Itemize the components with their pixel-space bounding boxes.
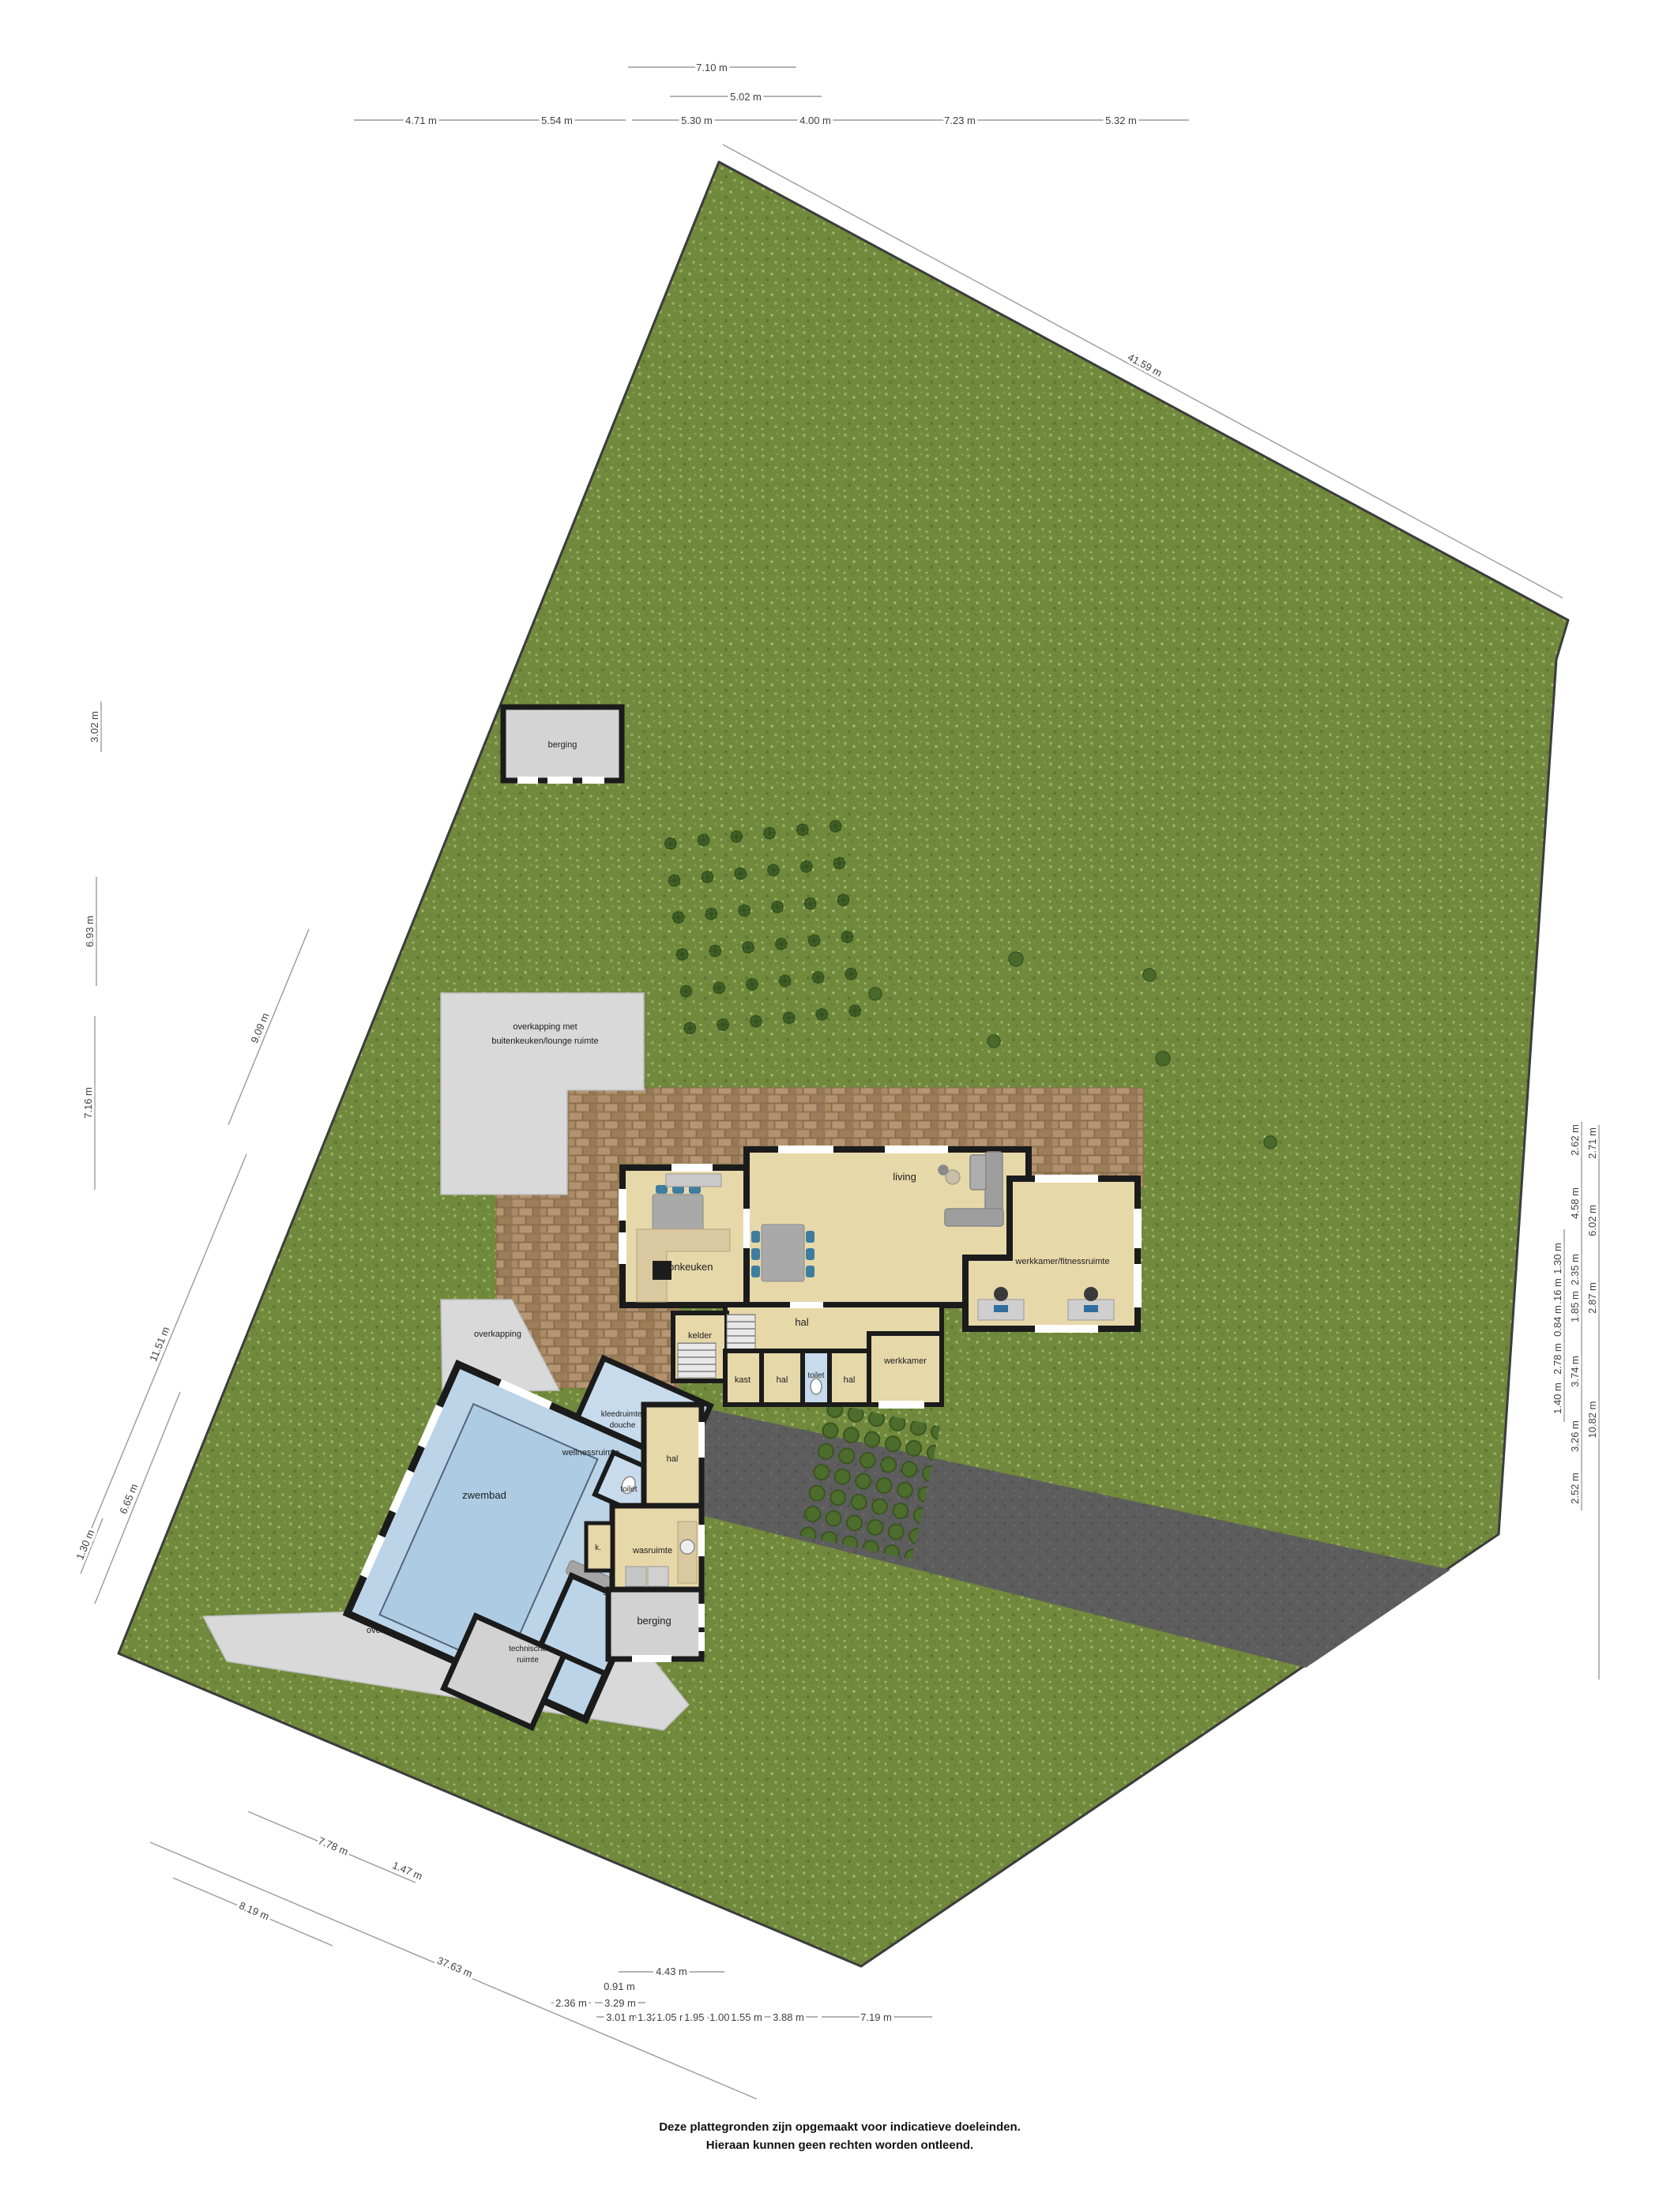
- hall-2-label: hal: [844, 1375, 856, 1385]
- closet-label: kast: [735, 1375, 750, 1385]
- cellar-stairs: [678, 1343, 716, 1378]
- dimension-label: 1.55 m: [731, 2011, 762, 2023]
- dimension-label: 5.54 m: [541, 115, 573, 126]
- orchard-trees: [646, 808, 868, 1055]
- dimension-label: 2.35 m: [1569, 1254, 1581, 1285]
- dimension-label: 10.82 m: [1586, 1401, 1598, 1439]
- dimension-label: 7.19 m: [860, 2011, 892, 2023]
- dimension-label: 1.40 m: [1552, 1382, 1563, 1414]
- dimension-label: 1.85 m: [1569, 1291, 1581, 1322]
- technical-label: technische: [509, 1645, 547, 1653]
- dimension-label: 2.52 m: [1569, 1473, 1581, 1504]
- canopy-small-label: overkapping: [474, 1330, 521, 1339]
- canopy-kitchen-label: buitenkeuken/lounge ruimte: [491, 1036, 598, 1046]
- changing-room-label: douche: [610, 1421, 636, 1430]
- dimension-label: 3.74 m: [1569, 1356, 1581, 1387]
- dimension-label: 1.05 m: [656, 2011, 688, 2023]
- dimension-label: 0.91 m: [604, 1981, 635, 1992]
- dimension-label: 1.30 m: [73, 1528, 96, 1561]
- dimension-label: 4.43 m: [656, 1966, 687, 1977]
- canopy-kitchen-label: overkapping met: [513, 1022, 577, 1032]
- dimension-label: 7.10 m: [696, 62, 728, 73]
- hall-main-label: hal: [795, 1316, 808, 1328]
- garden-plot: [118, 162, 1568, 1966]
- annex-label: werkkamer/fitnessruimte: [1014, 1257, 1109, 1266]
- dimension-label: 4.58 m: [1569, 1187, 1581, 1219]
- toilet-icon: [811, 1379, 822, 1394]
- dimension-label: 7.16 m: [82, 1087, 94, 1119]
- office-room: [869, 1334, 942, 1405]
- living-label: living: [893, 1171, 916, 1183]
- dimension-label: 4.71 m: [405, 115, 437, 126]
- dimension-label: 0.84 m: [1552, 1305, 1563, 1337]
- dimension-label: 3.29 m: [604, 1997, 636, 2009]
- dimension-label: 5.32 m: [1105, 115, 1137, 126]
- dimension-label: 6.02 m: [1586, 1205, 1598, 1236]
- garden-shed: berging: [503, 707, 622, 784]
- dimension-label: 37.63 m: [435, 1954, 474, 1980]
- dimension-label: 2.71 m: [1586, 1127, 1598, 1159]
- main-stairs: [727, 1315, 755, 1354]
- dimension-label: 8.19 m: [238, 1899, 271, 1922]
- hall-small-label: hal: [777, 1375, 788, 1385]
- footer-disclaimer: Deze plattegronden zijn opgemaakt voor i…: [659, 2120, 1021, 2134]
- kitchen-label: woonkeuken: [655, 1261, 713, 1273]
- storage-label: berging: [637, 1615, 671, 1627]
- wing-hall-label: hal: [667, 1454, 679, 1464]
- wellness-label: wellnessruimte: [562, 1448, 620, 1458]
- dimension-label: 6.93 m: [84, 916, 96, 947]
- cellar-label: kelder: [688, 1331, 712, 1341]
- dimension-label: 2.87 m: [1586, 1282, 1598, 1314]
- shed-window: [517, 777, 538, 784]
- office-label: werkkamer: [883, 1356, 927, 1366]
- dimension-label: 3.01 m: [606, 2011, 638, 2023]
- dimension-label: 7.78 m: [317, 1834, 350, 1857]
- changing-room-label: kleedruimte/: [601, 1410, 645, 1419]
- pool-label: zwembad: [462, 1489, 506, 1501]
- dimension-label: 3.88 m: [773, 2011, 804, 2023]
- dimension-label: 5.30 m: [681, 115, 713, 126]
- dimension-label: 3.26 m: [1569, 1420, 1581, 1452]
- dimension-label: 5.02 m: [730, 91, 762, 103]
- dimension-label: 2.36 m: [555, 1997, 587, 2009]
- dimension-label: 4.00 m: [799, 115, 831, 126]
- laundry-label: wasruimte: [632, 1546, 672, 1556]
- dimension-label: 1.30 m: [1552, 1243, 1563, 1274]
- dimension-label: 3.02 m: [88, 711, 100, 743]
- wing-toilet-label: toilet: [620, 1485, 637, 1494]
- dimension-label: 7.23 m: [944, 115, 976, 126]
- technical-label: ruimte: [517, 1656, 539, 1665]
- small-closet-label: k.: [595, 1544, 601, 1552]
- floorplan-canvas: berging overkapping met buitenkeuken/lou…: [0, 0, 1659, 2212]
- shed-label: berging: [548, 740, 577, 750]
- dimension-label: 2.16 m: [1552, 1278, 1563, 1310]
- footer-disclaimer: Hieraan kunnen geen rechten worden ontle…: [706, 2139, 973, 2152]
- shed-window: [547, 777, 573, 784]
- toilet-label: toilet: [807, 1371, 824, 1380]
- dimension-label: 2.78 m: [1552, 1343, 1563, 1375]
- dimension-label: 2.62 m: [1569, 1124, 1581, 1156]
- shed-door: [582, 777, 604, 784]
